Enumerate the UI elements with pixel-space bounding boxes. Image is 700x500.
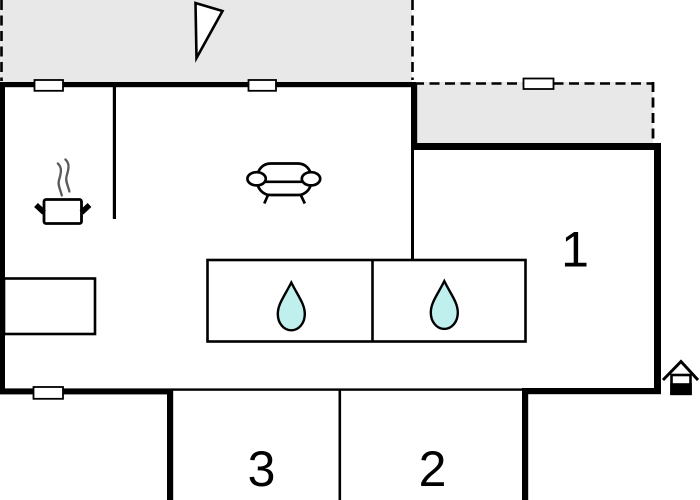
- svg-text:2: 2: [419, 441, 447, 497]
- svg-text:3: 3: [248, 441, 276, 497]
- svg-text:1: 1: [561, 222, 589, 278]
